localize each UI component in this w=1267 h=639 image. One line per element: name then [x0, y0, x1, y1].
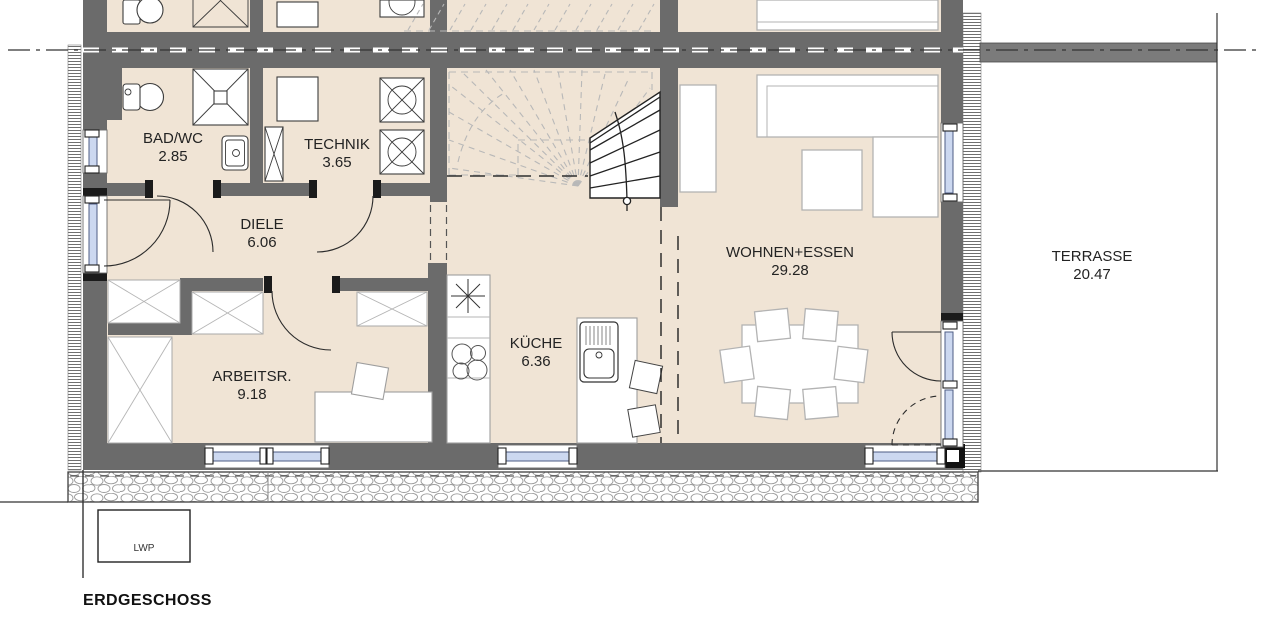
dryer	[380, 130, 424, 174]
room-name: TERRASSE	[1052, 248, 1133, 265]
terrace-door	[941, 321, 963, 447]
gravel-strip	[68, 472, 978, 502]
room-label-bad: BAD/WC 2.85	[143, 130, 203, 166]
desk	[315, 392, 432, 442]
wardrobe	[357, 292, 427, 326]
room-area: 2.85	[143, 148, 203, 166]
room-label-diele: DIELE 6.06	[240, 216, 283, 252]
heat-pump-label: LWP	[134, 543, 155, 554]
room-area: 9.18	[212, 386, 291, 404]
wardrobe	[108, 337, 172, 443]
stove-symbol	[451, 279, 485, 313]
room-name: WOHNEN+ESSEN	[726, 244, 854, 261]
room-name: BAD/WC	[143, 130, 203, 147]
room-name: DIELE	[240, 216, 283, 233]
bar-stool	[628, 405, 660, 437]
room-area: 20.47	[1052, 266, 1133, 284]
wardrobe	[192, 292, 263, 334]
coffee-table	[802, 150, 862, 210]
kitchen-window	[498, 445, 577, 468]
floor-plan-drawing	[0, 0, 1267, 639]
room-name: KÜCHE	[510, 335, 563, 352]
room-name: TECHNIK	[304, 136, 370, 153]
entrance-door	[83, 196, 107, 273]
terrace-divider-wall	[980, 43, 1217, 62]
room-label-arbeitsr: ARBEITSR. 9.18	[212, 368, 291, 404]
duct-shaft	[265, 127, 283, 181]
bar-stool	[629, 360, 662, 393]
hall-closet	[108, 280, 180, 323]
sofa-chaise	[873, 137, 938, 217]
sideboard	[680, 85, 716, 192]
room-area: 6.36	[510, 353, 563, 371]
room-label-terrasse: TERRASSE 20.47	[1052, 248, 1133, 284]
sink	[580, 322, 618, 382]
washer	[380, 78, 424, 122]
room-name: ARBEITSR.	[212, 368, 291, 385]
toilet	[123, 84, 164, 111]
stair-newel	[623, 197, 630, 204]
work-room-window	[205, 445, 329, 468]
sofa	[757, 75, 938, 137]
floor-plan-page: BAD/WC 2.85 TECHNIK 3.65 DIELE 6.06 ARBE…	[0, 0, 1267, 639]
room-area: 29.28	[726, 262, 854, 280]
room-area: 3.65	[304, 154, 370, 172]
room-label-wohnen: WOHNEN+ESSEN 29.28	[726, 244, 854, 280]
desk-chair	[351, 362, 388, 399]
living-side-window	[941, 123, 963, 202]
water-heater	[277, 77, 318, 121]
heat-pump-box	[98, 510, 190, 562]
washbasin	[222, 136, 248, 170]
living-window	[865, 445, 945, 468]
room-label-kueche: KÜCHE 6.36	[510, 335, 563, 371]
room-area: 6.06	[240, 234, 283, 252]
shower	[193, 69, 248, 125]
floor-title: ERDGESCHOSS	[83, 592, 212, 610]
bath-window	[83, 130, 107, 173]
room-label-technik: TECHNIK 3.65	[304, 136, 370, 172]
